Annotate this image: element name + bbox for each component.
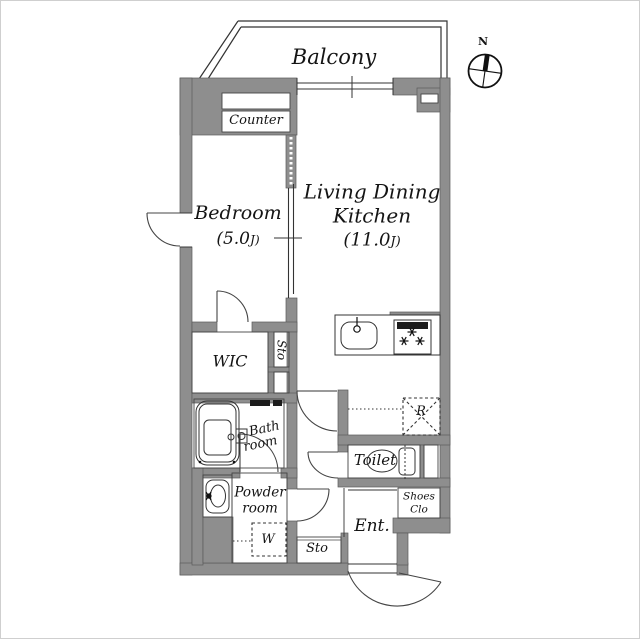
ldk-label-line1: Living Dining bbox=[304, 182, 441, 203]
ldk-hall-door bbox=[297, 391, 337, 431]
washbasin-icon bbox=[206, 480, 229, 513]
bedroom-label: Bedroom bbox=[194, 204, 281, 224]
counter-label: Counter bbox=[229, 114, 283, 128]
ldk-label-line2: Kitchen bbox=[333, 206, 411, 227]
bedroom-size-main: (5.0 bbox=[216, 229, 250, 249]
bedroom-size-unit: J) bbox=[250, 233, 260, 247]
powder-room-label-line1: Powder bbox=[234, 485, 285, 501]
ldk-size-unit: J) bbox=[390, 235, 400, 250]
bedroom-size: (5.0J) bbox=[216, 231, 259, 249]
balcony-window bbox=[297, 76, 393, 98]
washer-label: W bbox=[261, 533, 274, 547]
powder-room-door bbox=[297, 489, 329, 521]
fridge-space bbox=[348, 398, 440, 435]
ldk-size-main: (11.0 bbox=[343, 230, 390, 251]
shoes-closet-label: Shoes Clo bbox=[403, 490, 435, 515]
storage-lower-label: Sto bbox=[306, 542, 328, 556]
toilet-door bbox=[308, 452, 338, 478]
kitchen-counter bbox=[335, 312, 440, 355]
ldk-size: (11.0J) bbox=[343, 232, 400, 251]
compass-north-label: N bbox=[478, 36, 488, 48]
fridge-label: R bbox=[416, 405, 426, 419]
compass-icon bbox=[466, 52, 503, 89]
balcony-label: Balcony bbox=[292, 46, 376, 68]
toilet-label: Toilet bbox=[354, 453, 396, 469]
washer-space bbox=[233, 523, 286, 556]
entrance-door bbox=[348, 571, 441, 606]
wic-door bbox=[217, 291, 248, 322]
wic-label: WIC bbox=[212, 354, 247, 371]
powder-room-label: Powder room bbox=[234, 485, 285, 516]
floor-plan: Balcony N Bedroom (5.0J) Living Dining K… bbox=[0, 0, 640, 639]
shoes-closet-label-line2: Clo bbox=[403, 503, 435, 516]
storage-upper-label: Sto bbox=[275, 340, 288, 360]
stove-icon bbox=[394, 320, 431, 354]
shoes-closet-label-line1: Shoes bbox=[403, 490, 435, 503]
bedroom-exterior-door bbox=[147, 213, 180, 246]
entrance-label: Ent. bbox=[354, 518, 390, 536]
powder-room-label-line2: room bbox=[234, 501, 285, 517]
